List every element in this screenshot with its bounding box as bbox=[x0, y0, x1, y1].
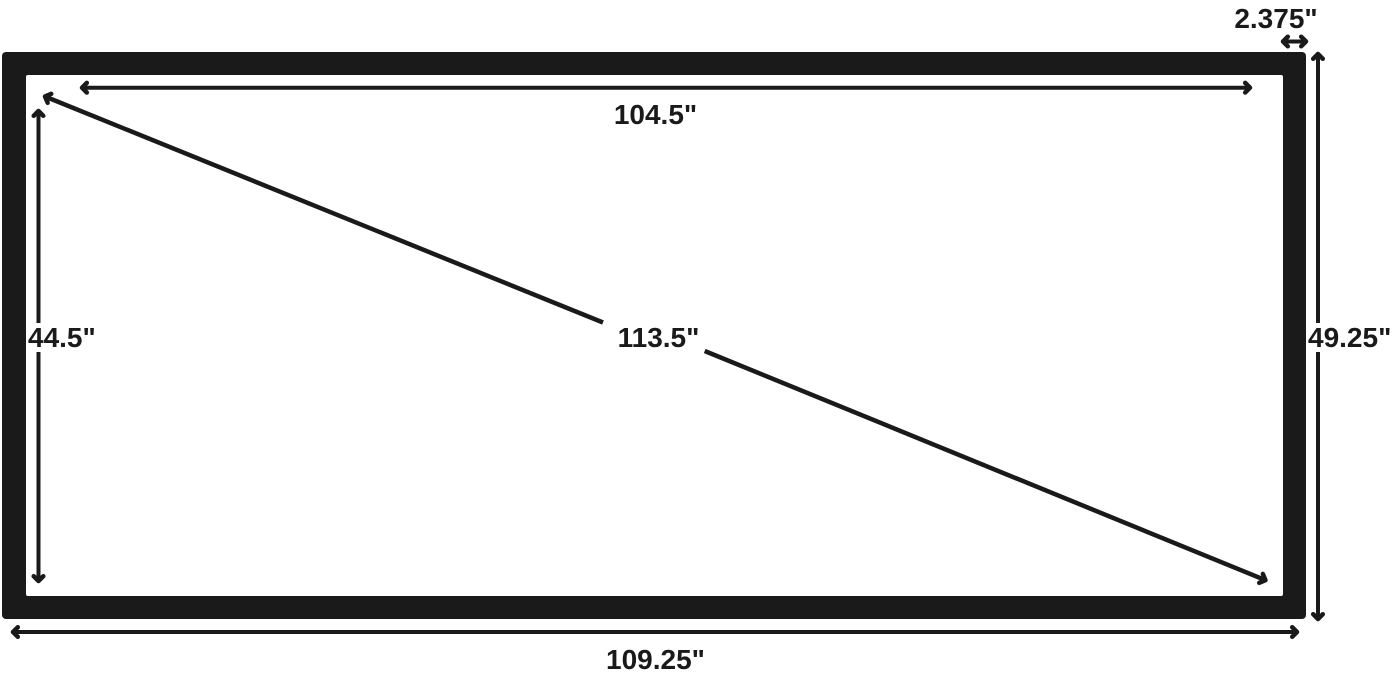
svg-text:2.375": 2.375" bbox=[1234, 3, 1317, 34]
svg-text:104.5": 104.5" bbox=[614, 99, 697, 130]
svg-text:44.5": 44.5" bbox=[28, 322, 96, 353]
svg-text:109.25": 109.25" bbox=[606, 644, 705, 674]
svg-text:49.25": 49.25" bbox=[1308, 322, 1391, 353]
svg-text:113.5": 113.5" bbox=[618, 322, 700, 353]
